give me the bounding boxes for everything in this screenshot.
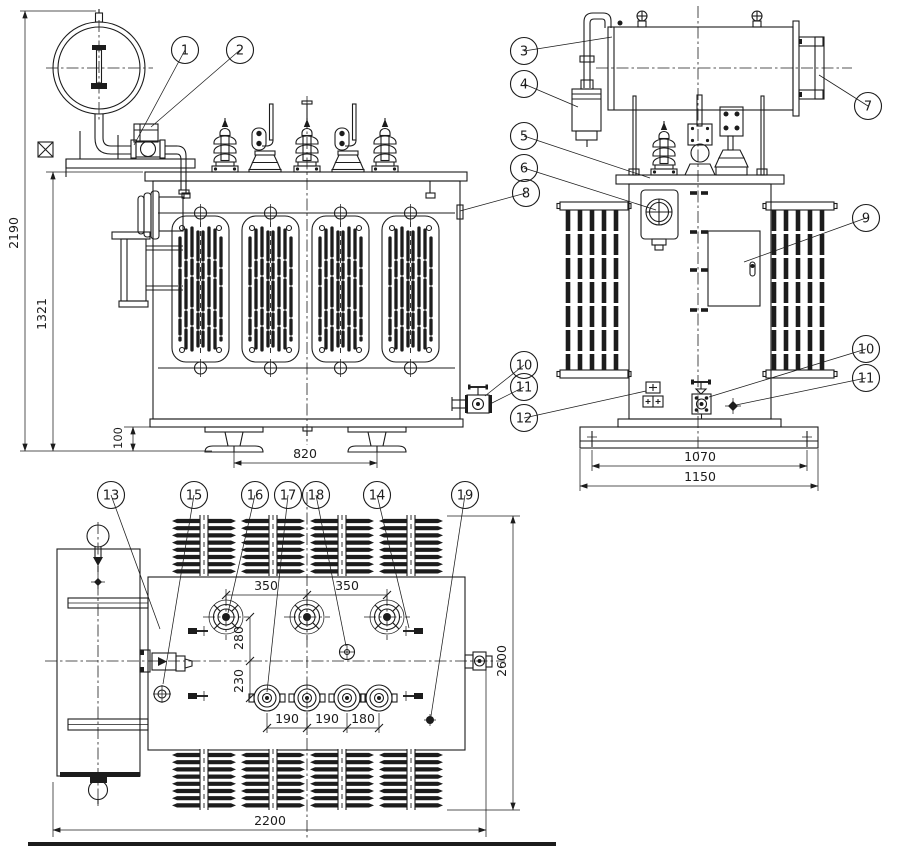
- callout-number: 17: [280, 489, 297, 504]
- callout-number: 12: [516, 412, 533, 427]
- hv-bushing: [372, 118, 398, 172]
- callout-6: 6: [511, 155, 538, 182]
- callout-number: 10: [858, 343, 875, 358]
- dim-text: 820: [293, 446, 317, 461]
- dim-overall-height: 2190: [6, 11, 96, 451]
- callout-number: 7: [864, 100, 872, 115]
- dim-text: 230: [231, 669, 246, 693]
- callout-number: 9: [862, 212, 870, 227]
- lv-bushing: [249, 104, 281, 172]
- oil-plates: [643, 382, 663, 407]
- dim-text: 1321: [34, 298, 49, 330]
- callout-number: 11: [516, 381, 533, 396]
- callout-16: 16: [242, 482, 269, 509]
- dim-lv-pitch: 190 190 180: [263, 711, 383, 733]
- drain-valve-plan: [465, 652, 492, 670]
- drain-valve-side: [691, 380, 711, 420]
- dim-text: 190: [315, 711, 339, 726]
- conservator-side: [596, 11, 852, 116]
- callout-19: 19: [452, 482, 479, 509]
- callout-number: 1: [181, 44, 189, 59]
- sheet-border-line: [28, 842, 556, 846]
- front-radiators: [172, 204, 439, 377]
- dim-base-hole-spacing: 1070: [592, 449, 807, 471]
- callout-number: 11: [858, 372, 875, 387]
- dim-hv-pitch: 350 350: [222, 578, 391, 600]
- hv-bushing: [212, 118, 238, 172]
- callout-9: 9: [853, 205, 880, 232]
- lifting-bolts: [188, 626, 423, 701]
- dim-text: 1150: [684, 469, 716, 484]
- callout-7: 7: [855, 93, 882, 120]
- callout-4: 4: [511, 71, 538, 98]
- conservator-front: [46, 9, 153, 159]
- plan-view: 350 350 280 230 190 190 180 2600 2200: [28, 492, 556, 846]
- center-bushing: [685, 95, 715, 175]
- callout-number: 3: [520, 45, 528, 60]
- nameplate: [708, 231, 760, 306]
- dim-text: 180: [351, 711, 375, 726]
- plan-lv-bushings: [249, 685, 397, 711]
- dim-text: 1070: [684, 449, 716, 464]
- sampling-valve-plan: [153, 685, 171, 703]
- callout-number: 6: [520, 162, 528, 177]
- callout-number: 18: [308, 489, 325, 504]
- callout-5: 5: [511, 123, 538, 150]
- callout-number: 8: [522, 187, 530, 202]
- dim-tank-height: 1321: [34, 172, 143, 451]
- dim-text: 350: [254, 578, 278, 593]
- callout-3: 3: [511, 38, 538, 65]
- front-view: 2190 1321 100 820: [6, 9, 492, 468]
- front-bushings: [212, 101, 398, 172]
- callout-12: 12: [511, 405, 538, 432]
- callout-2: 2: [227, 37, 254, 64]
- dim-text: 2200: [254, 813, 286, 828]
- drawing-canvas: 2190 1321 100 820: [0, 0, 900, 850]
- callout-15: 15: [181, 482, 208, 509]
- callout-number: 5: [520, 130, 528, 145]
- ground-bolt-side: [725, 398, 741, 414]
- dim-text: 100: [111, 427, 125, 449]
- callout-18: 18: [303, 482, 330, 509]
- callout-13: 13: [98, 482, 125, 509]
- callout-number: 14: [369, 489, 386, 504]
- thermometer: [641, 190, 678, 250]
- callout-number: 2: [236, 44, 244, 59]
- callout-11-front: 11: [511, 374, 538, 401]
- ground-bolt-plan: [424, 714, 436, 726]
- gas-relay-assembly: [38, 124, 195, 199]
- side-view: 1070 1150: [557, 6, 852, 491]
- callout-number: 16: [247, 489, 264, 504]
- dim-text: 2190: [6, 217, 21, 249]
- callout-17: 17: [275, 482, 302, 509]
- lv-bushing: [332, 104, 364, 172]
- hv-bushing: [651, 121, 677, 175]
- callout-14: 14: [364, 482, 391, 509]
- callout-number: 10: [516, 359, 533, 374]
- dim-row-offsets: 280 230: [231, 613, 254, 702]
- dim-wheel-height: 100: [111, 427, 150, 451]
- dim-text: 280: [231, 626, 246, 650]
- radiator-bank-left: [557, 202, 631, 378]
- callout-number: 4: [520, 78, 528, 93]
- dim-text: 2600: [494, 645, 509, 677]
- side-bushings: [651, 95, 748, 175]
- dim-wheel-spacing: 820: [234, 446, 377, 468]
- callout-10-front: 10: [511, 352, 538, 379]
- conservator-plan: [57, 522, 148, 806]
- callout-8: 8: [513, 180, 540, 207]
- callout-11-side: 11: [853, 365, 880, 392]
- callout-number: 13: [103, 489, 120, 504]
- wheels: [20, 427, 406, 452]
- callout-1: 1: [172, 37, 199, 64]
- callout-number: 15: [186, 489, 203, 504]
- radiator-bank-right: [763, 202, 837, 378]
- plan-radiators: [172, 515, 443, 810]
- lv-bushing-side: [715, 107, 748, 175]
- callout-number: 19: [457, 489, 474, 504]
- thermometer-seat-plan: [339, 644, 355, 660]
- drain-valve-front: [452, 385, 492, 414]
- transformer-outline-drawing: 2190 1321 100 820: [0, 0, 900, 850]
- dim-text: 350: [335, 578, 359, 593]
- dim-text: 190: [275, 711, 299, 726]
- breather-assembly: [572, 13, 611, 147]
- callout-10-side: 10: [853, 336, 880, 363]
